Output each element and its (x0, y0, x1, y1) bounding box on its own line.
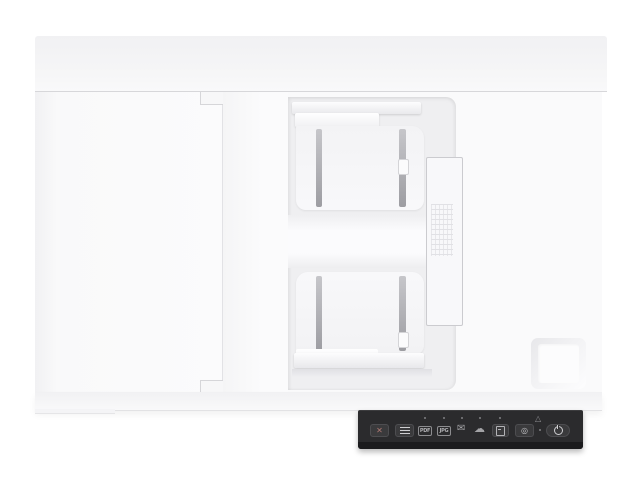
power-icon (554, 426, 563, 435)
jpg-badge-icon: JPG (437, 426, 451, 436)
guide-rail (316, 129, 322, 207)
error-led (539, 429, 541, 431)
flatbed-lid (35, 92, 223, 392)
pdf-led (424, 417, 426, 419)
adf-input-tray-top (296, 126, 424, 210)
cancel-button: ✕ (370, 424, 389, 437)
adf-hinge-strip (223, 92, 288, 392)
power-button (546, 424, 570, 437)
paper-guide-bottom (294, 353, 424, 368)
scanner-body (35, 92, 602, 392)
error-triangle-icon: △ (535, 415, 541, 423)
adf-input-tray-bottom (296, 272, 424, 355)
pdf-badge-icon: PDF (418, 426, 432, 436)
cloud-led (479, 417, 481, 419)
logo-plate-inner (538, 344, 579, 383)
hinge-notch-top (200, 92, 223, 105)
cloud-icon: ☁ (474, 423, 485, 434)
cancel-x-icon: ✕ (376, 427, 383, 435)
scanner-rear-lid-bar (35, 36, 607, 92)
rail-slider-knob (398, 332, 409, 348)
control-panel: ✕ PDF JPG ✉ ☁ ◎ △ (358, 410, 583, 449)
embossed-logo-plate (531, 338, 586, 389)
shortcut-led (499, 417, 501, 419)
scanner-front-edge-left-step (35, 409, 115, 414)
feed-mode-lines-icon (400, 427, 410, 434)
jpg-led (443, 417, 445, 419)
guide-rail (399, 129, 406, 207)
email-envelope-icon: ✉ (457, 424, 465, 434)
shortcut-button (492, 424, 509, 437)
guide-shadow (292, 369, 432, 377)
scanner-front-edge (35, 392, 602, 411)
paper-guide-top-slider (295, 113, 379, 127)
guide-rail (399, 276, 406, 351)
document-icon (496, 426, 505, 436)
embossed-paper-size-markings (431, 204, 453, 256)
rail-slider-knob (398, 159, 409, 175)
control-panel-bottom-lip (358, 442, 583, 449)
scan-target-icon: ◎ (521, 427, 528, 435)
email-led (461, 417, 463, 419)
scan-button: ◎ (515, 424, 534, 437)
scanner-product-photo: ✕ PDF JPG ✉ ☁ ◎ △ (0, 0, 640, 480)
feed-mode-button (395, 424, 414, 437)
guide-rail (316, 276, 322, 351)
output-tray-extension-outline (426, 157, 463, 326)
